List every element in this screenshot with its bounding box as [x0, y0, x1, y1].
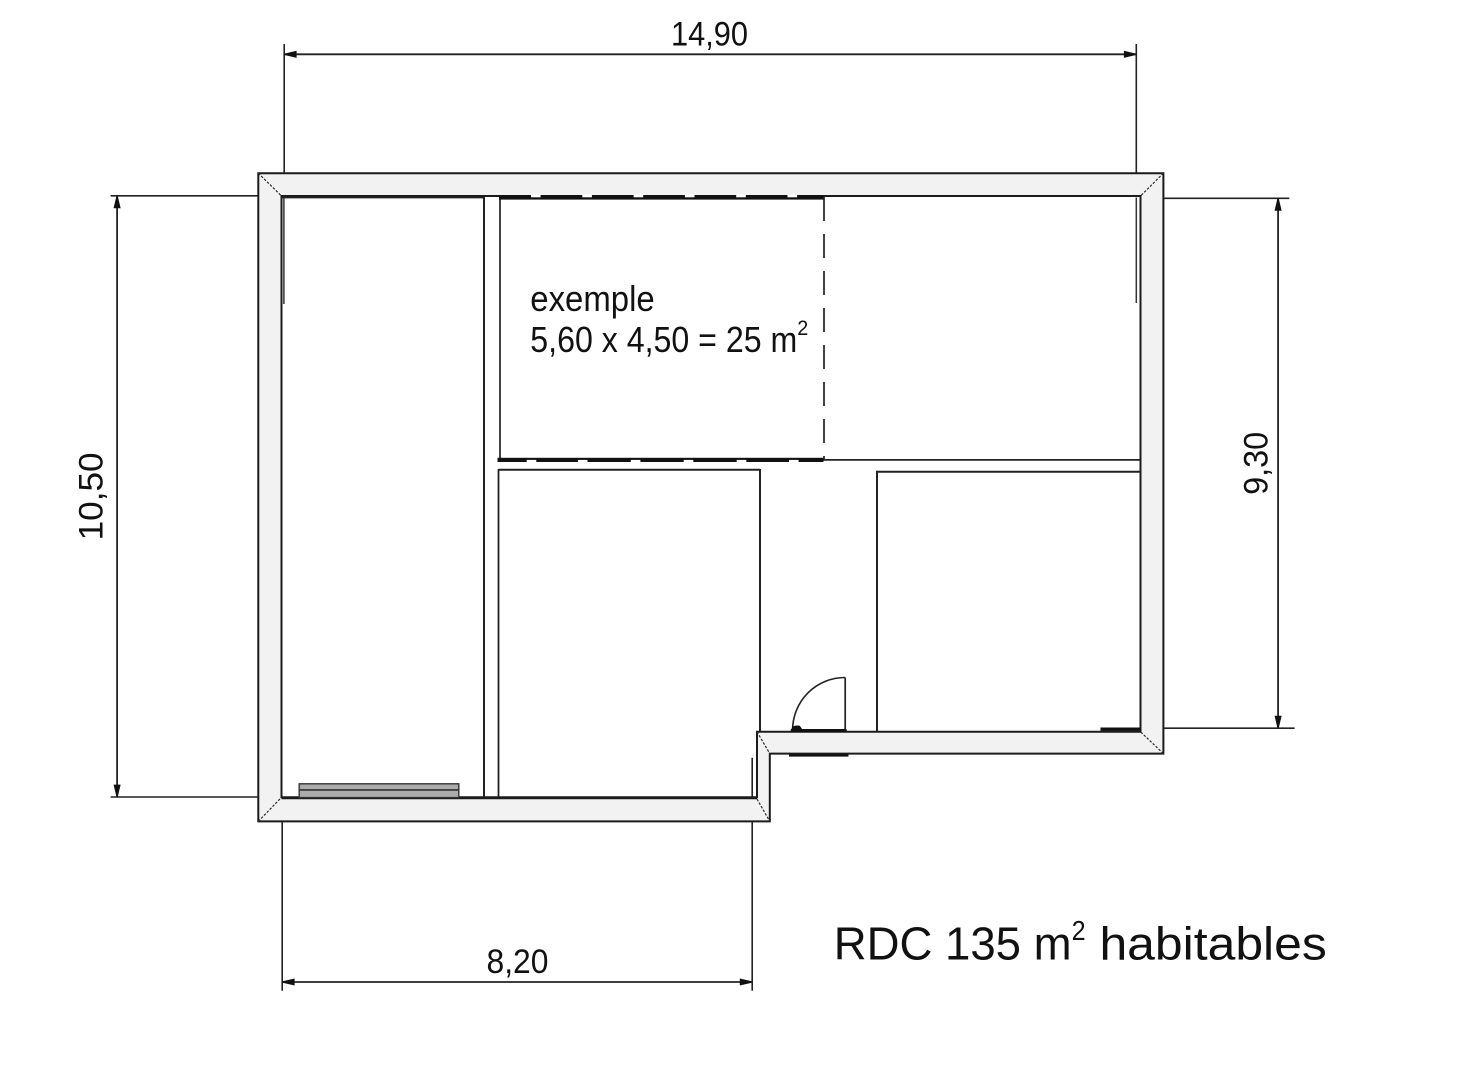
- svg-text:8,20: 8,20: [487, 943, 549, 981]
- svg-text:10,50: 10,50: [73, 452, 111, 540]
- svg-text:RDC 135 m2 habitables: RDC 135 m2 habitables: [834, 915, 1327, 969]
- svg-text:9,30: 9,30: [1238, 432, 1276, 495]
- svg-text:14,90: 14,90: [671, 16, 748, 54]
- svg-text:exemple: exemple: [530, 278, 654, 319]
- svg-text:5,60 x 4,50 = 25 m2: 5,60 x 4,50 = 25 m2: [530, 317, 808, 360]
